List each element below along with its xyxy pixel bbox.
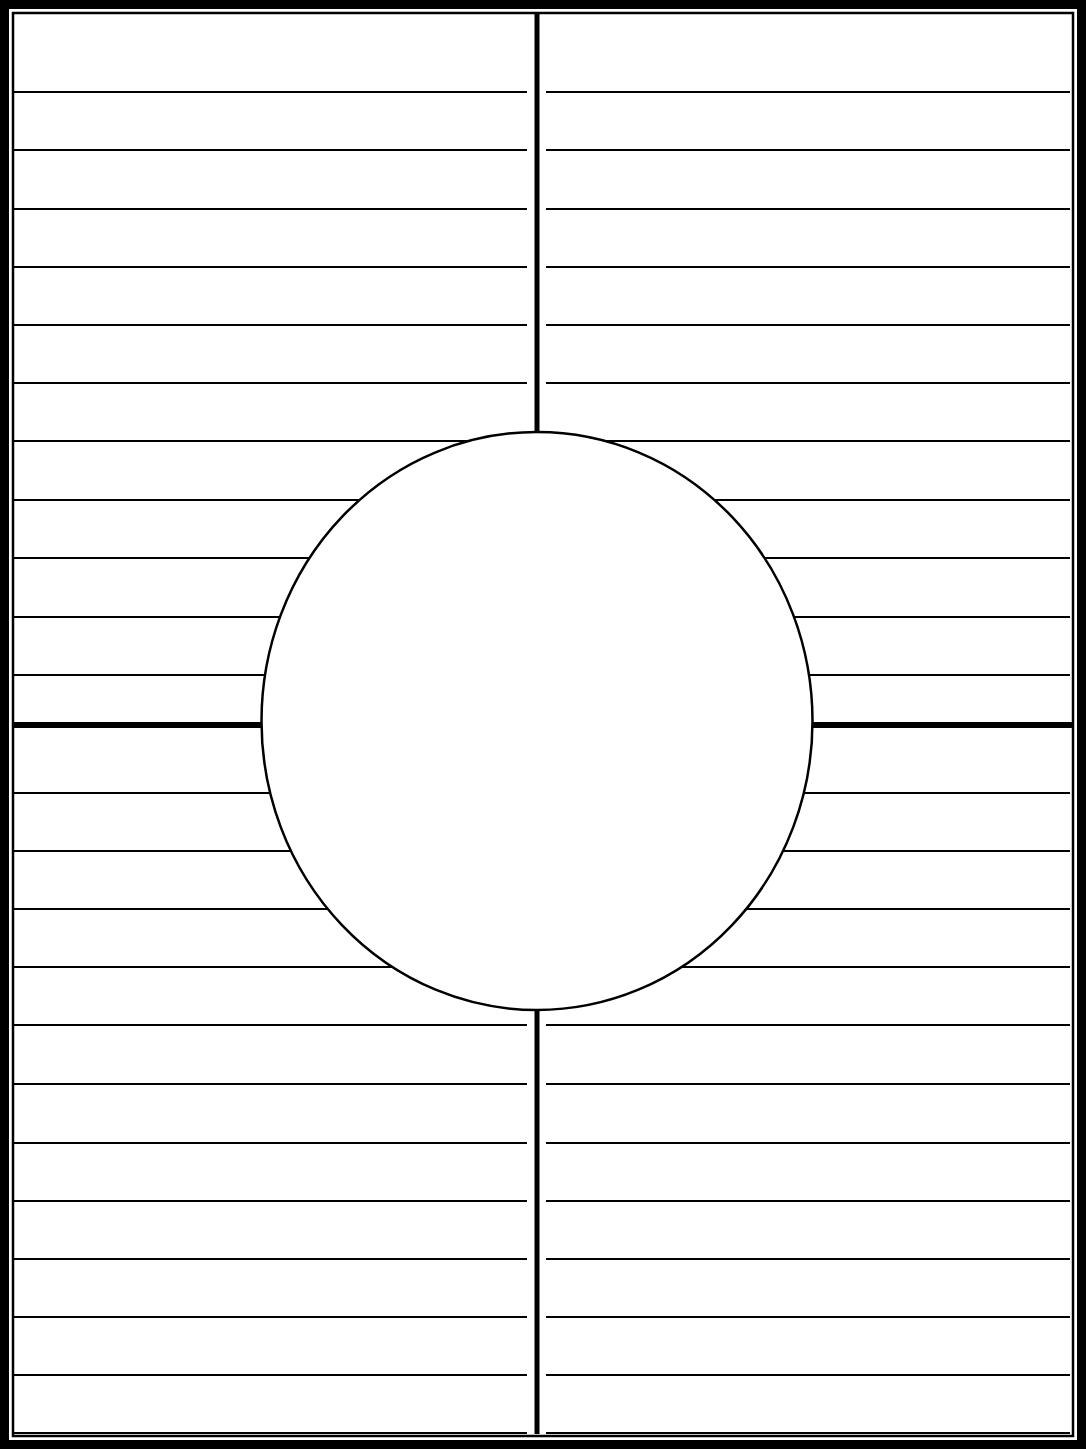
organizer-svg (0, 0, 1086, 1449)
center-circle (262, 432, 813, 1010)
worksheet-page (0, 0, 1086, 1449)
